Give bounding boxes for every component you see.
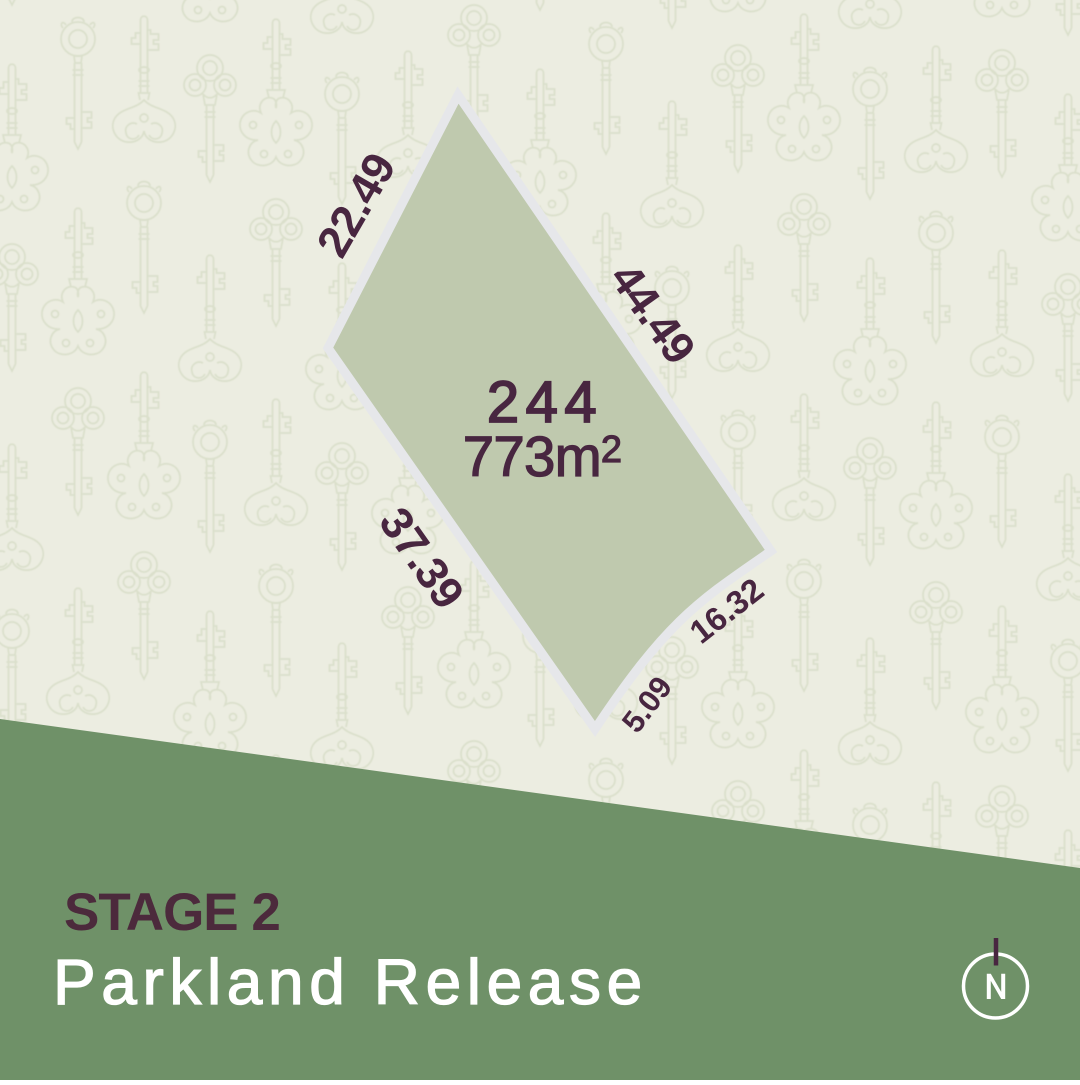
svg-text:773m2: 773m2 xyxy=(463,425,621,488)
svg-text:Parkland Release: Parkland Release xyxy=(53,946,648,1018)
svg-text:STAGE 2: STAGE 2 xyxy=(64,883,280,942)
